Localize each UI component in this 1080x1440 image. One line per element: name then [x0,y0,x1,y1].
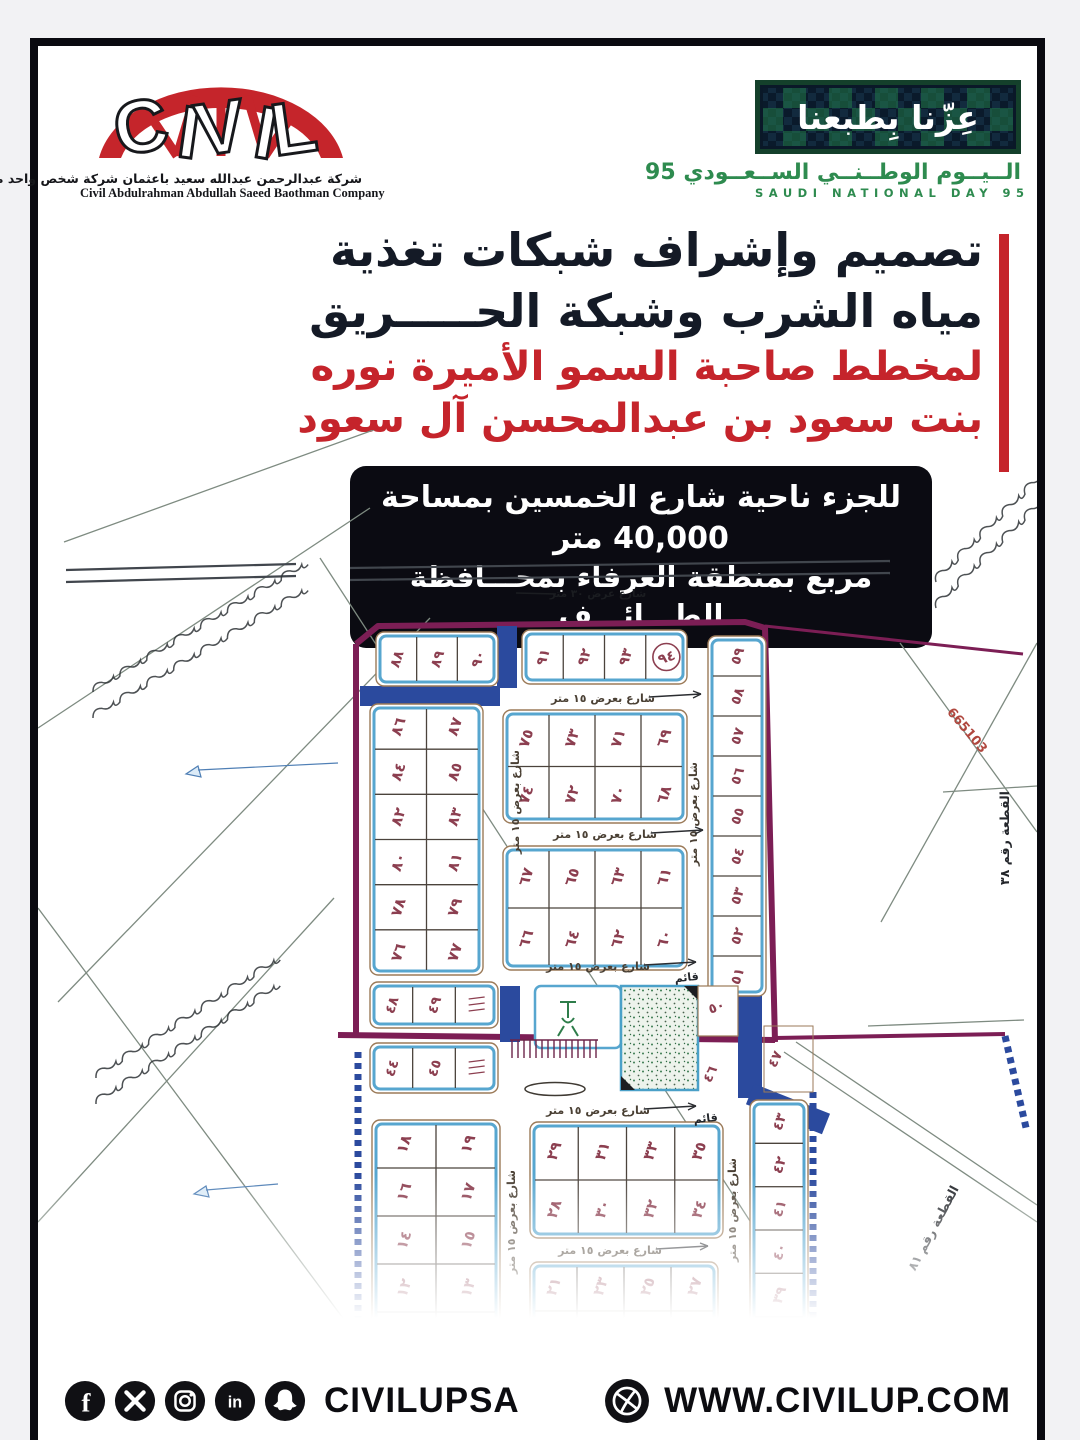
dimension-arrow [649,694,701,697]
street-label: شارع بعرض ١٥ متر [545,1104,650,1117]
services-plot [621,986,698,1090]
handwritten-annotation [932,459,1037,623]
plot-block: ٦٧٦٥٦٣٦١٦٦٦٤٦٢٦٠ [503,846,687,970]
plot-block: ٤٨٤٩ [370,982,498,1028]
plot-block: ٤٤٤٥ [370,1043,498,1093]
footer: f in [38,1364,1037,1438]
street-label: شارع بعرض ١٥ متر [550,692,655,705]
street-label: شارع بعرض ١٥ متر [687,762,700,867]
snapchat-icon [264,1380,306,1422]
handwritten-annotation [90,536,308,718]
survey-line [881,643,1037,922]
map-fade [38,1174,1037,1374]
plot-block: ٨٨٨٩٩٠ [376,632,498,686]
website-url: WWW.CIVILUP.COM [664,1381,1011,1421]
svg-text:in: in [228,1394,242,1412]
road-line [66,564,296,570]
poster-canvas: CIVIL شركة عبدالرحمن عبدالله سعيد باعثما… [0,0,1080,1440]
instagram-icon [164,1380,206,1422]
street-label: شارع عرض ٣٠ متر [549,588,646,600]
street-label: شارع بعرض ١٥ متر [545,960,650,973]
company-name-arabic: شركة عبدالرحمن عبدالله سعيد باعثمان شركة… [80,171,362,186]
boundary-top-ext [765,626,1023,654]
svg-text:f: f [82,1388,92,1418]
footer-social-group: f in [64,1380,520,1422]
national-day-slogan-box: عِزّنا بِطبعنا [755,80,1021,154]
street-label: القطعة رقم ٣٨ [997,791,1012,885]
survey-line [64,430,390,542]
map-arrow [186,766,201,777]
road-line [350,573,890,580]
facebook-icon: f [64,1380,106,1422]
civil-logo-graphic: CIVIL [85,74,357,170]
street-label: شارع بعرض ١٥ متر [552,828,657,841]
headline: تصميم وإشراف شبكات تغذية مياه الشرب وشبك… [297,220,983,445]
road-line [66,576,296,582]
street-blue [497,626,517,688]
company-logo: CIVIL شركة عبدالرحمن عبدالله سعيد باعثما… [80,74,362,201]
national-day-title-arabic: الــيــوم الوطــنــي الســعــودي 95 [755,160,1021,185]
survey-line [38,508,370,728]
plot-block: ٩١٩٢٩٣٩٤ [522,630,687,684]
island-oval [525,1083,585,1096]
plot-block: ٨٦٨٧٨٤٨٥٨٢٨٣٨٠٨١٧٨٧٩٧٦٧٧ [370,704,483,975]
company-name-english: Civil Abdulrahman Abdullah Saeed Baothma… [80,186,362,201]
boundary-dashed [1005,1036,1027,1132]
headline-line-3: لمخطط صاحبة السمو الأميرة نوره [297,341,983,393]
street-label: 665103 [943,705,989,756]
x-icon [114,1380,156,1422]
plot-number: ٤٧ [765,1048,787,1070]
headline-line-2: مياه الشرب وشبكة الحـــــريق [297,281,983,342]
handwritten-annotation [93,935,280,1100]
map-arrow-line [198,763,338,770]
linkedin-icon: in [214,1380,256,1422]
mosque-plot [535,986,621,1048]
national-day-title-english: SAUDI NATIONAL DAY 95 [755,186,1021,200]
street-blue [360,686,500,706]
dimension-arrow [644,1106,696,1109]
logo-wordmark: CIVIL [107,80,325,170]
globe-icon [604,1378,650,1424]
national-day-badge: عِزّنا بِطبعنا الــيــوم الوطــنــي السـ… [755,80,1021,200]
headline-line-1: تصميم وإشراف شبكات تغذية [297,220,983,281]
street-blue [500,986,520,1042]
plot-number: ٤٦ [700,1063,721,1085]
street-label: شارع بعرض ١٥ متر [509,750,522,855]
footer-website-group: WWW.CIVILUP.COM [604,1378,1011,1424]
plot-block: ٥٩٥٨٥٧٥٦٥٥٥٤٥٣٥٢٥١ [708,636,766,996]
street-label: قائم [693,1111,718,1126]
social-handle: CIVILUPSA [324,1381,520,1421]
road-line [350,561,890,568]
street-blue [738,986,762,1098]
handwritten-annotation [932,433,1037,597]
national-day-slogan: عِزّنا بِطبعنا [797,101,979,134]
handwritten-annotation [93,961,280,1126]
dimension-arrow [516,593,556,594]
border-frame: CIVIL شركة عبدالرحمن عبدالله سعيد باعثما… [30,38,1045,1440]
plot-block: ٧٥٧٣٧١٦٩٧٤٧٢٧٠٦٨ [503,710,687,823]
survey-line [868,1020,1024,1026]
street-label: قائم [674,970,699,985]
handwritten-annotation [90,562,308,744]
boundary-cross-ext [775,1034,1005,1038]
